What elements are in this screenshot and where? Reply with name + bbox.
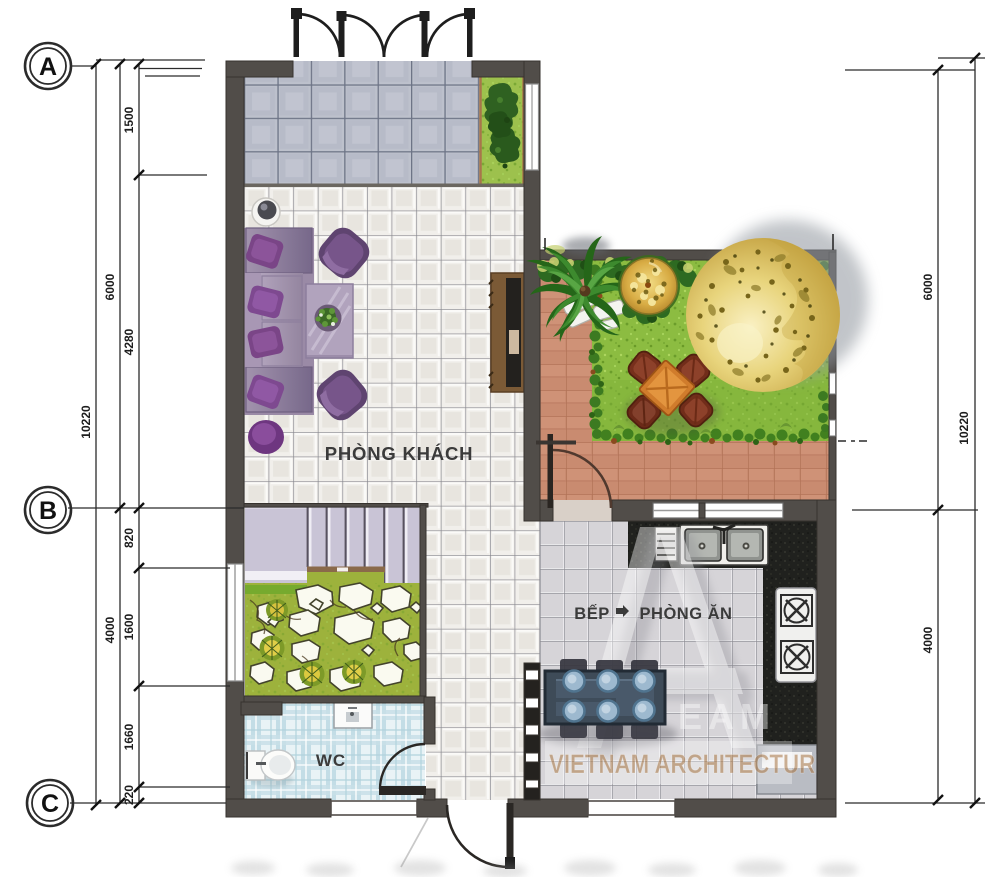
svg-text:10220: 10220 xyxy=(957,411,971,445)
svg-text:PHÒNG KHÁCH: PHÒNG KHÁCH xyxy=(325,443,474,464)
svg-text:4280: 4280 xyxy=(122,328,136,355)
svg-text:220: 220 xyxy=(122,785,136,805)
svg-text:4000: 4000 xyxy=(103,616,117,643)
svg-text:10220: 10220 xyxy=(79,405,93,439)
svg-text:1600: 1600 xyxy=(122,613,136,640)
svg-text:6000: 6000 xyxy=(921,273,935,300)
svg-text:PHÒNG ĂN: PHÒNG ĂN xyxy=(640,604,733,623)
svg-text:A: A xyxy=(39,53,57,81)
svg-text:EAM: EAM xyxy=(678,696,776,737)
svg-text:B: B xyxy=(39,497,57,525)
svg-text:4000: 4000 xyxy=(921,626,935,653)
svg-text:1500: 1500 xyxy=(122,106,136,133)
svg-text:WC: WC xyxy=(316,751,346,770)
svg-text:1660: 1660 xyxy=(122,723,136,750)
svg-text:820: 820 xyxy=(122,528,136,548)
svg-text:VIETNAM ARCHITECTURE: VIETNAM ARCHITECTURE xyxy=(549,749,830,779)
svg-text:6000: 6000 xyxy=(103,273,117,300)
svg-text:C: C xyxy=(41,790,59,818)
svg-text:BẾP: BẾP xyxy=(574,604,609,623)
